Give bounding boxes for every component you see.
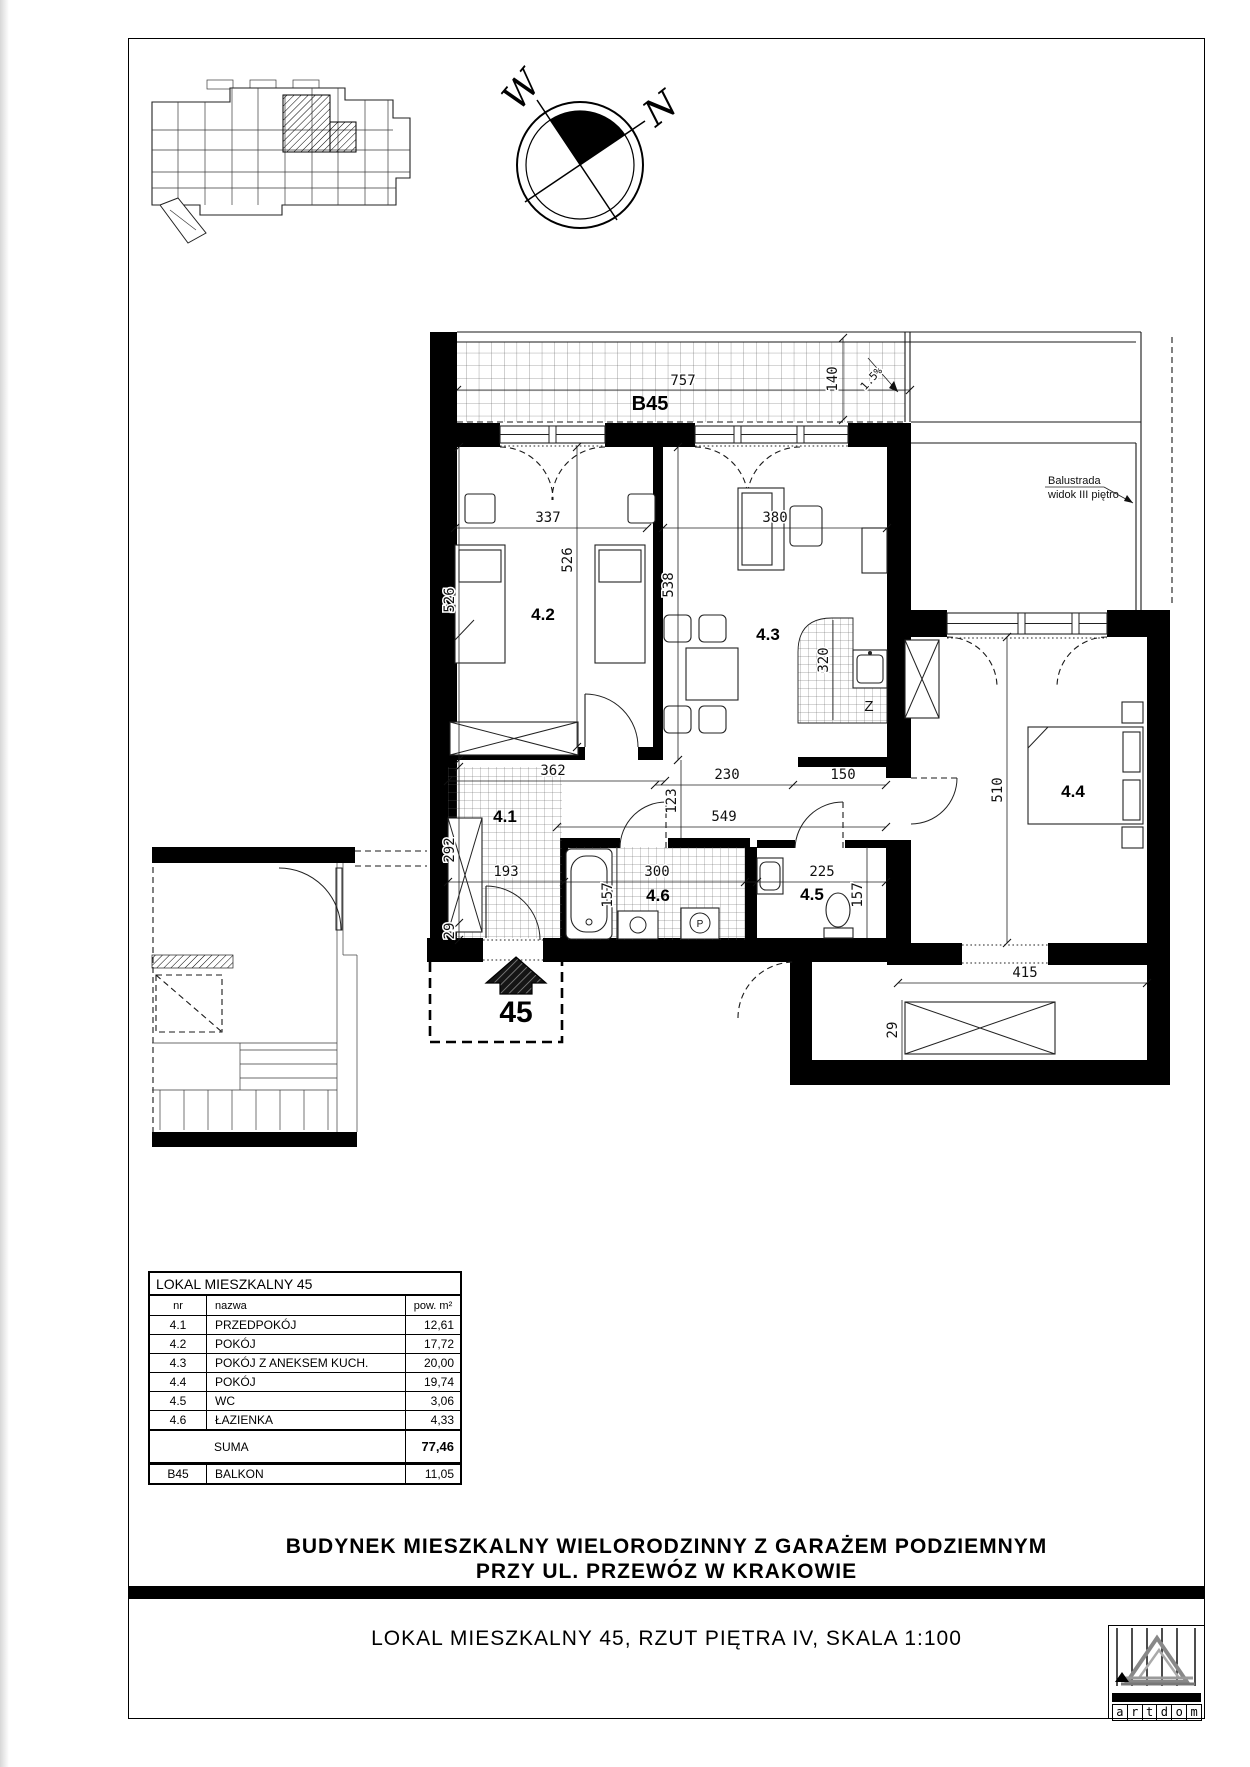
- bathroom-sink: [618, 911, 658, 939]
- project-title: BUDYNEK MIESZKALNY WIELORODZINNY Z GARAŻ…: [128, 1534, 1205, 1584]
- dim-157-wc: 157: [850, 882, 866, 907]
- table-row: 4.6 ŁAZIENKA 4,33: [150, 1410, 460, 1429]
- dim-29: 29: [442, 923, 458, 940]
- title-divider-bar: [128, 1586, 1205, 1599]
- suma-value: 77,46: [406, 1439, 460, 1455]
- logo-letter: t: [1142, 1704, 1158, 1721]
- col-header-pow: pow. m²: [406, 1298, 460, 1314]
- cell-nr: 4.6: [150, 1411, 207, 1429]
- logo-letter: r: [1127, 1704, 1143, 1721]
- dim-balcony-depth: 140: [825, 366, 841, 391]
- nightstand: [1122, 827, 1143, 848]
- wardrobe-room-42: [450, 722, 578, 755]
- room-label-44: 4.4: [1061, 782, 1085, 801]
- artdom-logo-emblem: [1109, 1626, 1203, 1688]
- project-title-line2: PRZY UL. PRZEWÓZ W KRAKOWIE: [128, 1559, 1205, 1584]
- table-row: 4.4 POKÓJ 19,74: [150, 1372, 460, 1391]
- keyplan-unit-highlight: [283, 95, 330, 152]
- cell-pow: 11,05: [406, 1466, 460, 1482]
- room-schedule-table: LOKAL MIESZKALNY 45 nr nazwa pow. m² 4.1…: [148, 1271, 462, 1485]
- table-title: LOKAL MIESZKALNY 45: [150, 1273, 460, 1294]
- floor-plan-drawing: W N B45 757 140 1.5%: [0, 0, 1250, 1767]
- kitchen-sink-label: Z: [864, 698, 873, 715]
- cabinet: [465, 494, 495, 523]
- wardrobe-lower: [905, 1002, 1055, 1054]
- drawing-sheet: W N B45 757 140 1.5%: [0, 0, 1250, 1767]
- dim-225: 225: [809, 864, 834, 880]
- cell-nr: 4.5: [150, 1392, 207, 1410]
- logo-black-bar: [1112, 1693, 1201, 1702]
- entrance-marker: 45: [486, 957, 546, 1029]
- nightstand: [1122, 702, 1143, 723]
- logo-letter: o: [1171, 1704, 1187, 1721]
- logo-letter: a: [1112, 1704, 1128, 1721]
- dim-150: 150: [830, 767, 855, 783]
- wardrobe-room-44: [905, 640, 939, 718]
- wc-sink: [757, 858, 783, 894]
- table-row: 4.1 PRZEDPOKÓJ 12,61: [150, 1315, 460, 1334]
- washing-machine-label: P: [697, 919, 704, 930]
- building-key-plan: [152, 80, 410, 243]
- artdom-logo: a r t d o m: [1108, 1625, 1205, 1719]
- dim-300: 300: [644, 864, 669, 880]
- dim-337: 337: [535, 510, 560, 526]
- window-room-42: [500, 426, 605, 446]
- dim-193: 193: [493, 864, 518, 880]
- window-room-44: [947, 613, 1107, 638]
- cell-pow: 12,61: [406, 1317, 460, 1333]
- table-suma-row: SUMA 77,46: [150, 1429, 460, 1464]
- cell-nazwa: PRZEDPOKÓJ: [207, 1316, 406, 1334]
- cell-empty: [150, 1431, 206, 1462]
- stair-steps: [152, 1043, 337, 1130]
- dim-510: 510: [990, 777, 1006, 802]
- dim-123: 123: [664, 788, 680, 813]
- dim-549: 549: [711, 809, 736, 825]
- table-row: 4.2 POKÓJ 17,72: [150, 1334, 460, 1353]
- window-room-43: [695, 426, 848, 446]
- balustrade-note-line1: Balustrada: [1048, 475, 1101, 487]
- toilet: [824, 893, 853, 938]
- balustrade-note: Balustrada widok III piętro: [1045, 475, 1133, 503]
- entrance-number: 45: [499, 996, 532, 1029]
- north-compass: W N: [495, 61, 688, 228]
- room-label-46: 4.6: [646, 886, 670, 905]
- logo-letter: d: [1156, 1704, 1172, 1721]
- cell-pow: 4,33: [406, 1412, 460, 1428]
- dim-526-right: 526: [560, 547, 576, 572]
- dim-362: 362: [540, 763, 565, 779]
- bed-double: [1028, 727, 1143, 824]
- entrance-arrow-icon: [486, 957, 546, 994]
- wardrobe-hall: [448, 818, 482, 932]
- chair: [664, 615, 691, 642]
- cell-pow: 3,06: [406, 1393, 460, 1409]
- table-row: 4.3 POKÓJ Z ANEKSEM KUCH. 20,00: [150, 1353, 460, 1372]
- chair: [699, 615, 726, 642]
- dim-526-left: 526: [442, 587, 458, 612]
- dim-157-bath: 157: [600, 882, 616, 907]
- suma-label: SUMA: [206, 1431, 406, 1462]
- col-header-nr: nr: [150, 1296, 207, 1315]
- dim-29-lower: 29: [885, 1022, 901, 1039]
- dim-balcony-width: 757: [670, 373, 695, 389]
- dim-292: 292: [442, 837, 458, 862]
- table-row: 4.5 WC 3,06: [150, 1391, 460, 1410]
- dim-415: 415: [1012, 965, 1037, 981]
- chair: [699, 706, 726, 733]
- cell-nazwa: POKÓJ: [207, 1335, 406, 1353]
- armchair: [790, 506, 822, 546]
- logo-letters: a r t d o m: [1112, 1704, 1201, 1721]
- cell-pow: 19,74: [406, 1374, 460, 1390]
- cell-nr: B45: [150, 1465, 207, 1483]
- dim-320: 320: [816, 647, 832, 672]
- cell-nr: 4.2: [150, 1335, 207, 1353]
- cell-pow: 17,72: [406, 1336, 460, 1352]
- cell-nr: 4.3: [150, 1354, 207, 1372]
- cell-nazwa: POKÓJ Z ANEKSEM KUCH.: [207, 1354, 406, 1372]
- cell-nazwa: ŁAZIENKA: [207, 1411, 406, 1429]
- cell-nr: 4.1: [150, 1316, 207, 1334]
- room-label-41: 4.1: [493, 807, 517, 826]
- table-header-row: nr nazwa pow. m²: [150, 1294, 460, 1315]
- dim-380: 380: [762, 510, 787, 526]
- cabinet: [628, 494, 655, 523]
- compass-north-label: N: [635, 82, 687, 135]
- room-label-42: 4.2: [531, 605, 555, 624]
- table-balkon-row: B45 BALKON 11,05: [150, 1464, 460, 1483]
- room-label-43: 4.3: [756, 625, 780, 644]
- kitchen-cabinet: [862, 528, 887, 573]
- logo-letter: m: [1186, 1704, 1202, 1721]
- dim-538: 538: [661, 572, 677, 597]
- compass-north-quadrant: [550, 111, 625, 165]
- washing-machine: P: [681, 908, 719, 939]
- project-title-line1: BUDYNEK MIESZKALNY WIELORODZINNY Z GARAŻ…: [128, 1534, 1205, 1559]
- col-header-nazwa: nazwa: [207, 1296, 406, 1315]
- cell-nazwa: WC: [207, 1392, 406, 1410]
- dining-table: [686, 648, 738, 700]
- room-label-45: 4.5: [800, 885, 824, 904]
- sheet-title: LOKAL MIESZKALNY 45, RZUT PIĘTRA IV, SKA…: [128, 1627, 1205, 1651]
- kitchen-sink: [853, 650, 887, 688]
- cell-pow: 20,00: [406, 1355, 460, 1371]
- cell-nazwa: POKÓJ: [207, 1373, 406, 1391]
- balustrade-note-line2: widok III piętro: [1047, 489, 1119, 501]
- cell-nazwa: BALKON: [207, 1465, 406, 1483]
- balcony-label: B45: [632, 393, 669, 415]
- chair: [664, 706, 691, 733]
- table-title-text: LOKAL MIESZKALNY 45: [156, 1276, 312, 1292]
- dim-230: 230: [714, 767, 739, 783]
- cell-nr: 4.4: [150, 1373, 207, 1391]
